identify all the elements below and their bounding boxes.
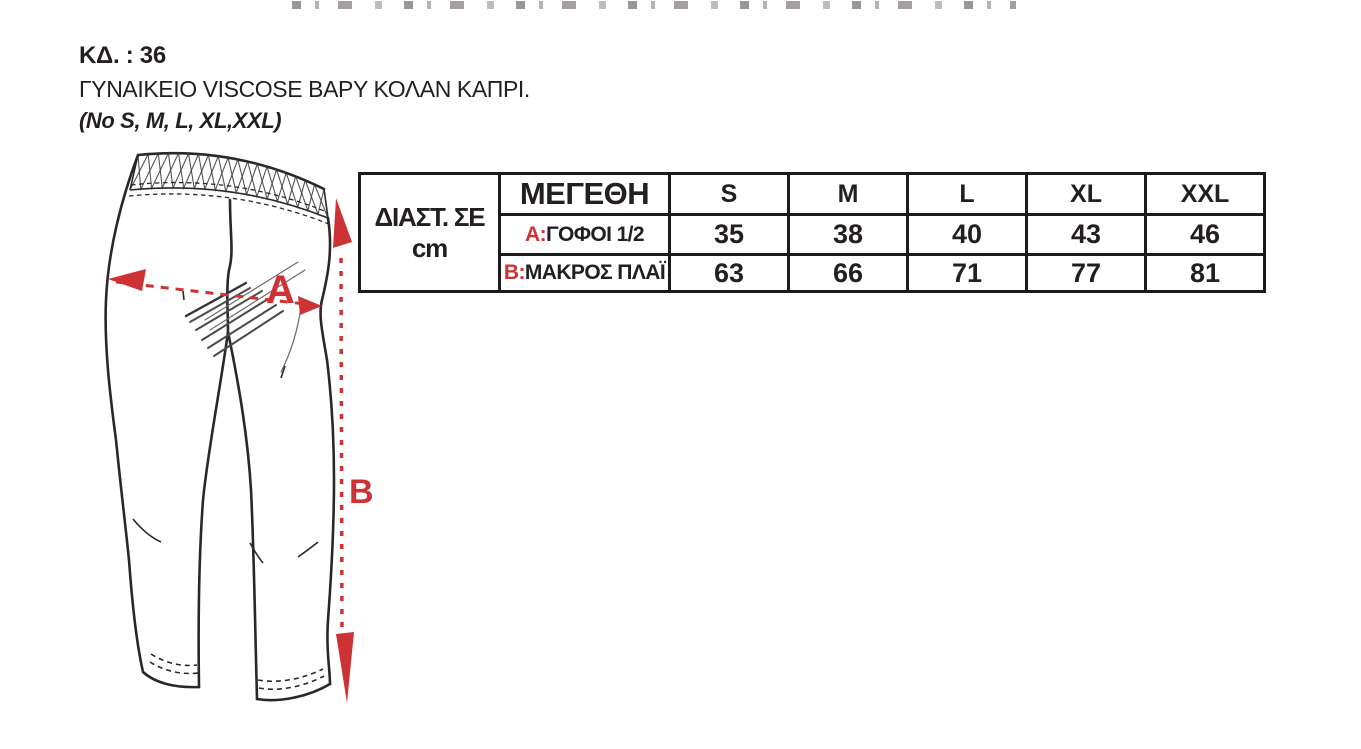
- size-table: ΔΙΑΣΤ. ΣΕ cm ΜΕΓΕΘΗ S M L XL XXL A:ΓΟΦΟΙ…: [358, 172, 1266, 293]
- col-header-m: M: [789, 174, 908, 215]
- cell-a-m: 38: [789, 215, 908, 255]
- cell-a-l: 40: [908, 215, 1027, 255]
- row-a-label: A:ΓΟΦΟΙ 1/2: [500, 215, 670, 255]
- row-a-key: A:: [525, 223, 546, 246]
- size-header-cell: ΜΕΓΕΘΗ: [500, 174, 670, 215]
- col-header-s: S: [670, 174, 789, 215]
- leggings-technical-drawing: A B: [0, 0, 1361, 749]
- row-b-label: B:ΜΑΚΡΟΣ ΠΛΑΪ: [500, 255, 670, 292]
- dimension-a-label: A: [266, 268, 295, 312]
- cell-a-s: 35: [670, 215, 789, 255]
- cell-b-s: 63: [670, 255, 789, 292]
- unit-cell: ΔΙΑΣΤ. ΣΕ cm: [360, 174, 500, 292]
- col-header-xl: XL: [1027, 174, 1146, 215]
- cell-a-xl: 43: [1027, 215, 1146, 255]
- cell-a-xxl: 46: [1146, 215, 1265, 255]
- cell-b-l: 71: [908, 255, 1027, 292]
- leggings-outline: [106, 155, 334, 700]
- hem-stitches: [150, 654, 324, 689]
- col-header-l: L: [908, 174, 1027, 215]
- cell-b-xxl: 81: [1146, 255, 1265, 292]
- cell-b-xl: 77: [1027, 255, 1146, 292]
- cell-b-m: 66: [789, 255, 908, 292]
- dimension-b-label: B: [349, 473, 374, 511]
- col-header-xxl: XXL: [1146, 174, 1265, 215]
- row-b-key: B:: [504, 261, 525, 284]
